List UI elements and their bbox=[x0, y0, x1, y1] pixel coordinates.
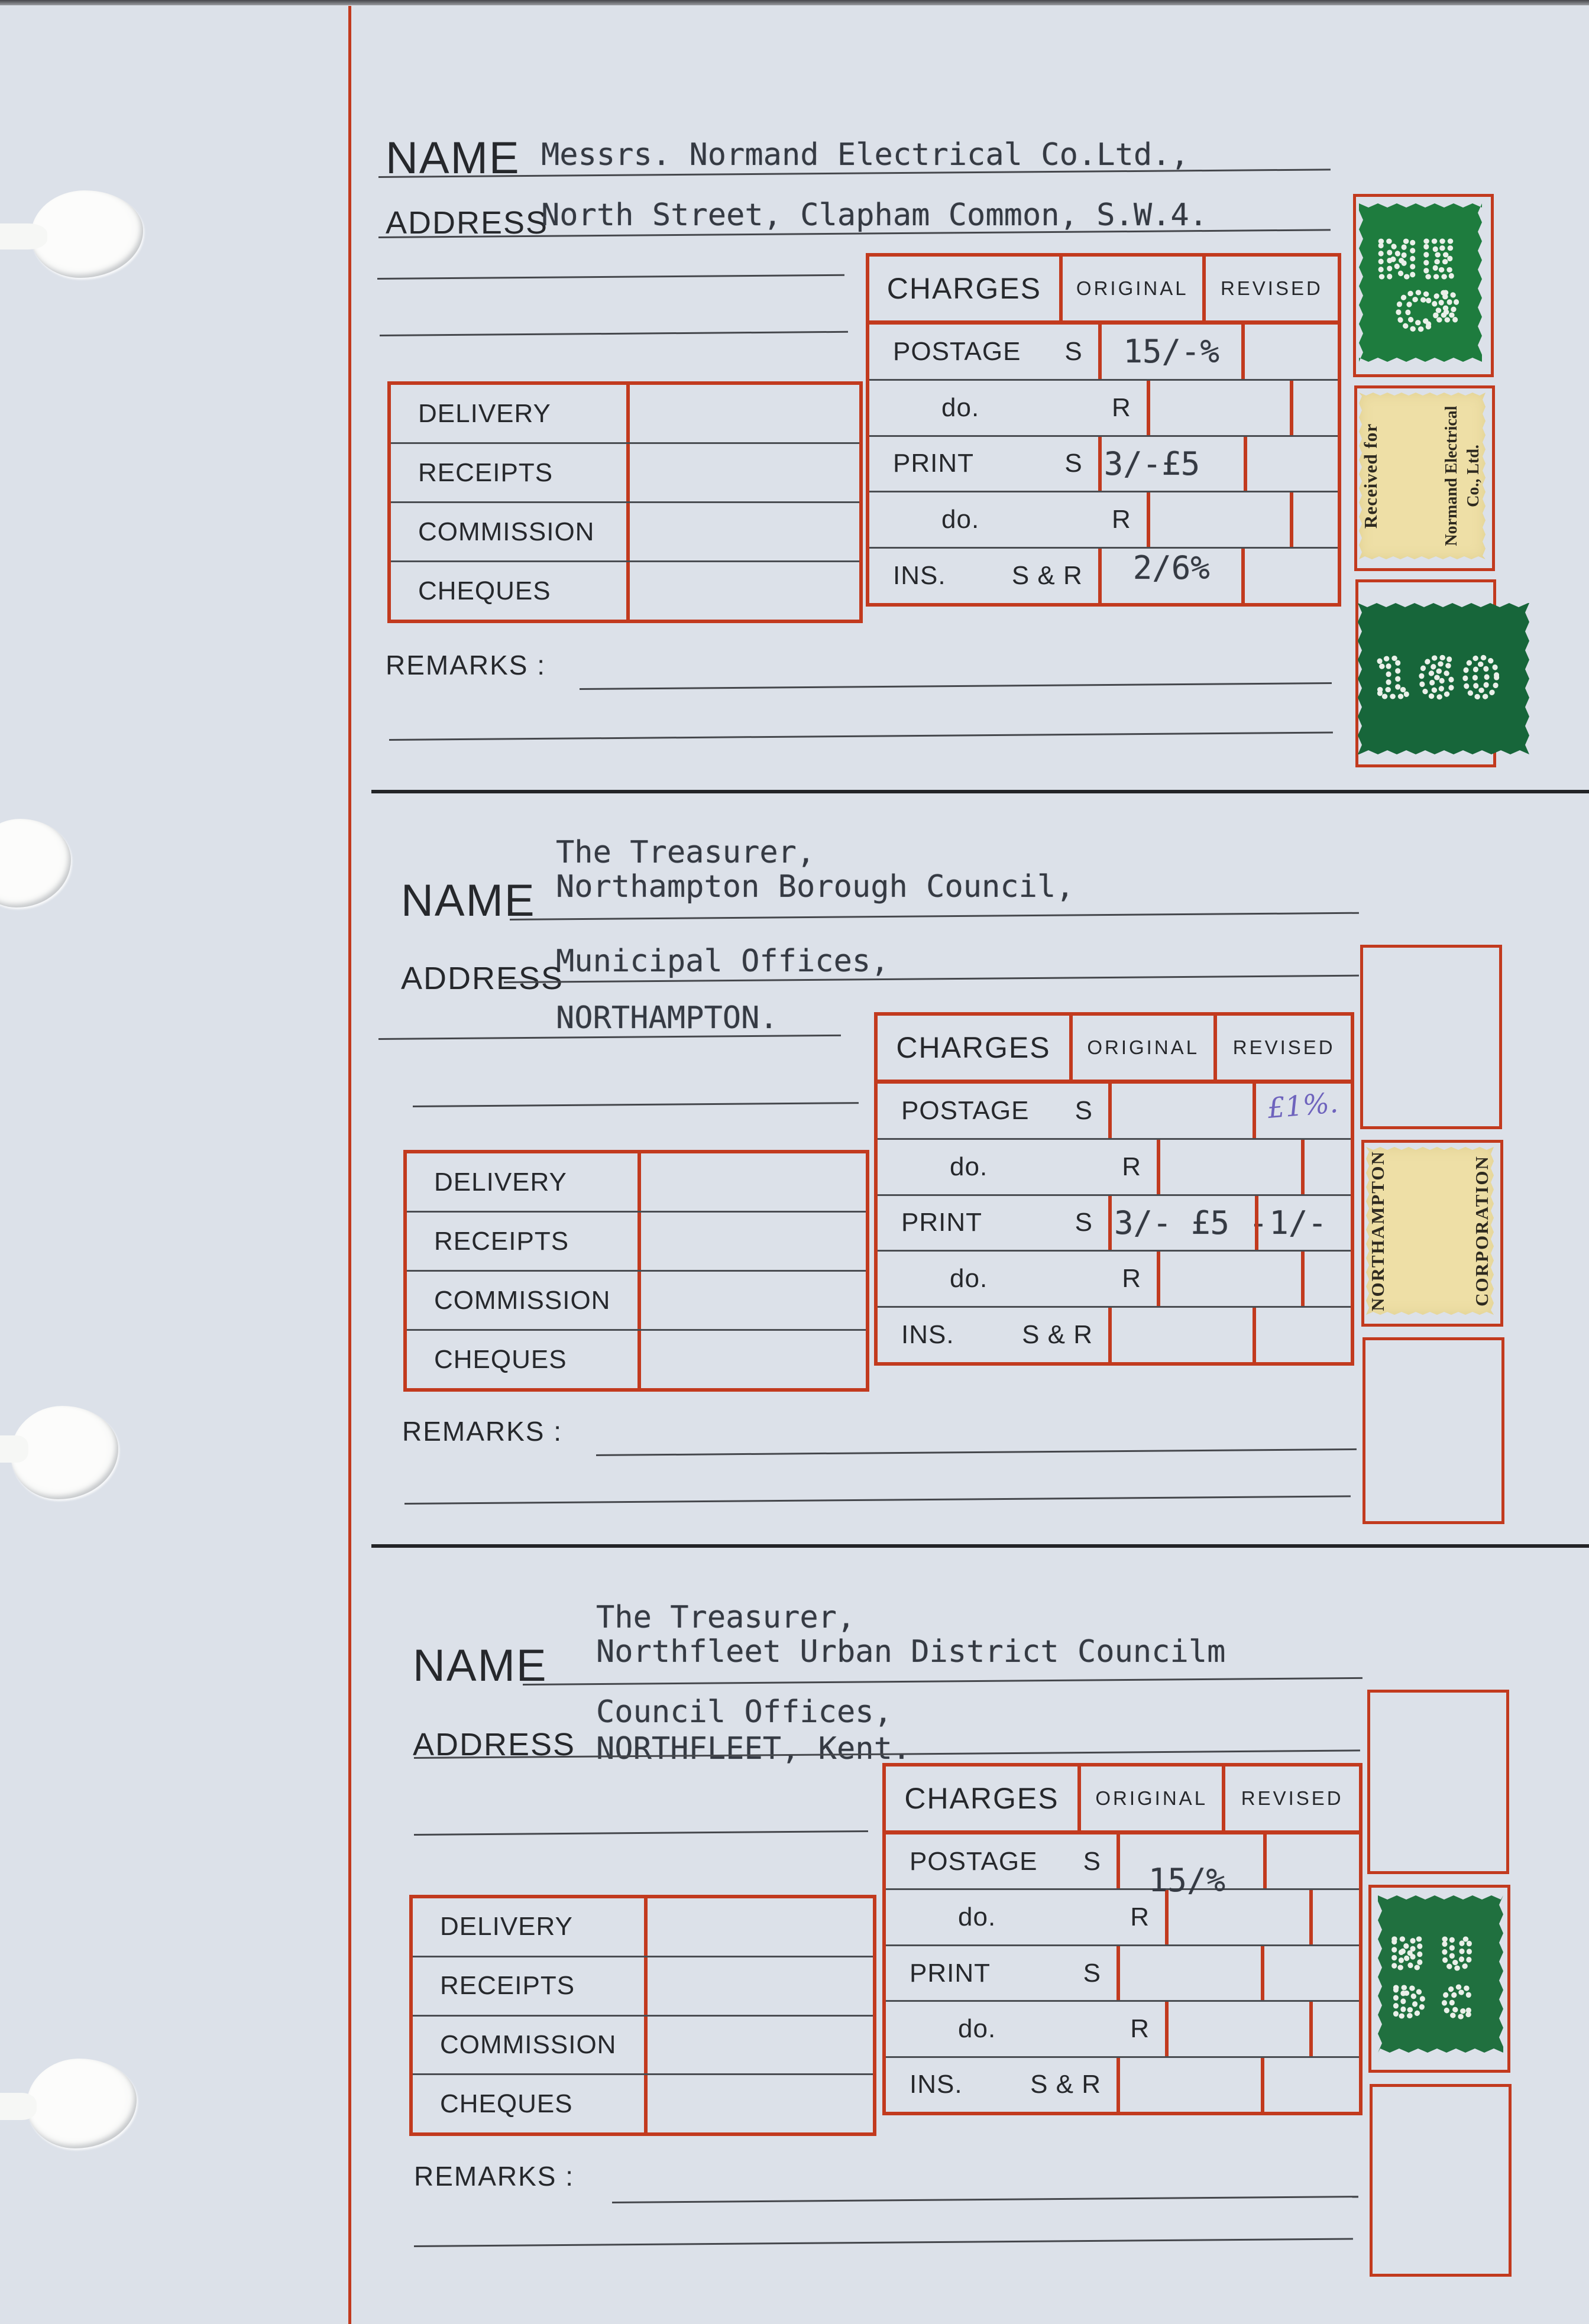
charges-col-original: ORIGINAL bbox=[1059, 257, 1202, 320]
charges-title: CHARGES bbox=[886, 1767, 1077, 1830]
row-label: PRINT bbox=[910, 1959, 991, 1988]
punch-hole-tear bbox=[0, 1435, 28, 1463]
row-suffix: R bbox=[1112, 505, 1131, 534]
ledger-value bbox=[641, 1153, 866, 1211]
row-label: INS. bbox=[901, 1320, 954, 1350]
ledger-row-receipts: RECEIPTS bbox=[407, 1211, 866, 1270]
charges-header-row: CHARGES ORIGINAL REVISED bbox=[878, 1016, 1351, 1084]
ledger-value bbox=[630, 444, 859, 501]
ledger-label: RECEIPTS bbox=[434, 1227, 569, 1256]
ledger-table: DELIVERY RECEIPTS COMMISSION CHEQUES bbox=[387, 381, 863, 623]
name-underline bbox=[523, 1677, 1363, 1686]
row-label: do. bbox=[958, 1902, 996, 1932]
red-margin-line bbox=[348, 6, 351, 2324]
ledger-row-commission: COMMISSION bbox=[413, 2015, 873, 2074]
original-value: 3/-£5 bbox=[1104, 445, 1200, 482]
remarks-underline bbox=[596, 1448, 1357, 1456]
ledger-label: RECEIPTS bbox=[418, 458, 553, 488]
perfin-text: 160 bbox=[1374, 648, 1507, 709]
row-suffix: S bbox=[1083, 1847, 1101, 1876]
label-received-for: Received for bbox=[1360, 423, 1381, 529]
northampton-corporation-label: NORTHAMPTON CORPORATION bbox=[1366, 1147, 1494, 1315]
remarks-underline bbox=[612, 2196, 1358, 2203]
blank-ruled-line bbox=[414, 2238, 1353, 2247]
ledger-row-commission: COMMISSION bbox=[407, 1270, 866, 1329]
row-label: PRINT bbox=[893, 449, 974, 478]
ledger-value bbox=[630, 562, 859, 620]
row-suffix: R bbox=[1112, 393, 1131, 423]
ledger-row-delivery: DELIVERY bbox=[413, 1898, 873, 1956]
perfin-text: DC bbox=[1392, 1980, 1488, 2025]
row-label: POSTAGE bbox=[910, 1847, 1037, 1876]
charges-table: CHARGES ORIGINAL REVISED POSTAGES 15/-% … bbox=[866, 253, 1341, 607]
charges-row-postage-r: do.R bbox=[869, 379, 1338, 435]
charges-row-print-s: PRINTS bbox=[886, 1944, 1359, 2000]
charges-row-postage-r: do.R bbox=[878, 1138, 1351, 1194]
address-value: Council Offices, bbox=[596, 1694, 892, 1730]
ledger-label: RECEIPTS bbox=[440, 1971, 575, 2001]
address-value: Municipal Offices, bbox=[556, 944, 889, 979]
original-value: 3/- £5 - bbox=[1114, 1204, 1268, 1242]
stamp-nudc: NU DC bbox=[1378, 1895, 1503, 2053]
charges-row-postage-s: POSTAGES 15/-% bbox=[869, 325, 1338, 379]
charges-row-ins: INS.S & R 2/6% bbox=[869, 547, 1338, 603]
charges-col-revised: REVISED bbox=[1202, 257, 1338, 320]
address-label: ADDRESS bbox=[401, 960, 564, 997]
ledger-label: CHEQUES bbox=[418, 576, 551, 606]
address-value: North Street, Clapham Common, S.W.4. bbox=[541, 197, 1208, 233]
row-label: POSTAGE bbox=[901, 1096, 1029, 1126]
row-label: do. bbox=[950, 1152, 988, 1182]
charges-col-original: ORIGINAL bbox=[1077, 1767, 1222, 1830]
blank-ruled-line bbox=[389, 731, 1333, 741]
revised-value: 1/- bbox=[1261, 1204, 1327, 1242]
revised-value-handwritten: £1%. bbox=[1267, 1087, 1340, 1125]
remarks-label: REMARKS : bbox=[402, 1415, 562, 1447]
blank-ruled-line bbox=[414, 1830, 868, 1836]
charges-row-print-r: do.R bbox=[869, 491, 1338, 547]
blank-ruled-line bbox=[413, 1102, 859, 1107]
original-value: 2/6% bbox=[1133, 549, 1210, 586]
stamp-box-empty bbox=[1363, 1337, 1504, 1524]
scan-edge bbox=[0, 0, 1589, 5]
charges-row-postage-s: POSTAGES £1%. bbox=[878, 1084, 1351, 1138]
remarks-underline bbox=[580, 682, 1332, 690]
ledger-label: COMMISSION bbox=[440, 2030, 616, 2060]
stamp-160: 160 bbox=[1358, 603, 1529, 754]
label-corporation: CORPORATION bbox=[1471, 1155, 1493, 1307]
row-suffix: S bbox=[1075, 1208, 1093, 1237]
row-label: INS. bbox=[910, 2070, 963, 2099]
charges-row-ins: INS.S & R bbox=[886, 2056, 1359, 2112]
ledger-label: CHEQUES bbox=[434, 1345, 567, 1375]
blank-ruled-line bbox=[380, 331, 848, 336]
perfin-text: NU bbox=[1391, 1931, 1491, 1977]
row-suffix: S bbox=[1083, 1959, 1101, 1988]
address-value: NORTHAMPTON. bbox=[556, 1000, 778, 1036]
name-underline bbox=[510, 912, 1359, 920]
ledger-row-commission: COMMISSION bbox=[391, 501, 859, 560]
ledger-value bbox=[630, 385, 859, 442]
row-label: do. bbox=[958, 2014, 996, 2044]
address-value: NORTHFLEET, Kent. bbox=[596, 1731, 911, 1767]
ledger-value bbox=[648, 2017, 873, 2074]
charges-row-print-r: do.R bbox=[878, 1250, 1351, 1306]
received-for-label: Received for Normand ElectricalCo., Ltd. bbox=[1359, 393, 1486, 559]
name-value: The Treasurer, bbox=[596, 1600, 855, 1635]
punch-hole bbox=[31, 190, 143, 278]
charges-header-row: CHARGES ORIGINAL REVISED bbox=[869, 257, 1338, 325]
remarks-label: REMARKS : bbox=[386, 649, 546, 681]
punch-hole-tear bbox=[0, 223, 47, 249]
punch-hole-tear bbox=[0, 2093, 37, 2120]
name-value: Northfleet Urban District Councilm bbox=[596, 1634, 1225, 1670]
ledger-row-delivery: DELIVERY bbox=[407, 1153, 866, 1211]
blank-ruled-line bbox=[377, 274, 844, 280]
row-label: do. bbox=[941, 505, 979, 534]
charges-col-revised: REVISED bbox=[1213, 1016, 1351, 1080]
ledger-table: DELIVERY RECEIPTS COMMISSION CHEQUES bbox=[403, 1150, 869, 1392]
ledger-value bbox=[648, 2075, 873, 2132]
ledger-label: DELIVERY bbox=[418, 399, 551, 429]
label-company-line1: Normand Electrical bbox=[1442, 406, 1461, 546]
charges-row-postage-s: POSTAGES 15/% bbox=[886, 1834, 1359, 1888]
row-suffix: R bbox=[1122, 1264, 1141, 1294]
ledger-value bbox=[648, 1898, 873, 1956]
row-suffix: S bbox=[1064, 337, 1082, 367]
ledger-label: COMMISSION bbox=[434, 1286, 610, 1315]
row-label: INS. bbox=[893, 561, 946, 591]
section-separator bbox=[371, 1544, 1589, 1548]
charges-row-print-r: do.R bbox=[886, 2000, 1359, 2056]
name-value: Messrs. Normand Electrical Co.Ltd., bbox=[541, 137, 1189, 173]
charges-table: CHARGES ORIGINAL REVISED POSTAGES 15/% d… bbox=[882, 1763, 1363, 2115]
stamp-box-empty bbox=[1370, 2084, 1512, 2277]
ledger-value bbox=[648, 1957, 873, 2015]
remarks-label: REMARKS : bbox=[414, 2160, 574, 2192]
charges-row-ins: INS.S & R bbox=[878, 1306, 1351, 1362]
ledger-value bbox=[630, 503, 859, 560]
row-label: PRINT bbox=[901, 1208, 982, 1237]
perfin-text: NE bbox=[1377, 232, 1460, 289]
ledger-page: NAME Messrs. Normand Electrical Co.Ltd.,… bbox=[0, 0, 1589, 2324]
ledger-label: DELIVERY bbox=[440, 1912, 573, 1941]
ledger-label: DELIVERY bbox=[434, 1168, 567, 1197]
charges-title: CHARGES bbox=[878, 1016, 1069, 1080]
row-label: POSTAGE bbox=[893, 337, 1021, 367]
ledger-row-delivery: DELIVERY bbox=[391, 385, 859, 442]
name-value: The Treasurer, bbox=[556, 835, 815, 870]
row-suffix: R bbox=[1122, 1152, 1141, 1182]
ledger-value bbox=[641, 1272, 866, 1329]
punch-hole bbox=[0, 819, 71, 907]
charges-table: CHARGES ORIGINAL REVISED POSTAGES £1%. d… bbox=[874, 1012, 1354, 1366]
row-suffix: S & R bbox=[1012, 561, 1083, 591]
ledger-row-cheques: CHEQUES bbox=[391, 560, 859, 620]
blank-ruled-line bbox=[404, 1495, 1351, 1505]
row-suffix: R bbox=[1130, 2014, 1150, 2044]
ledger-label: CHEQUES bbox=[440, 2089, 573, 2119]
stamp-ne-co: NE Cº bbox=[1359, 203, 1482, 362]
name-value: Northampton Borough Council, bbox=[556, 869, 1075, 905]
ledger-value bbox=[641, 1213, 866, 1270]
original-value: 15/-% bbox=[1123, 333, 1219, 370]
charges-title: CHARGES bbox=[869, 257, 1059, 320]
charges-row-print-s: PRINTS 3/- £5 - 1/- bbox=[878, 1194, 1351, 1250]
charges-header-row: CHARGES ORIGINAL REVISED bbox=[886, 1767, 1359, 1834]
ledger-table: DELIVERY RECEIPTS COMMISSION CHEQUES bbox=[409, 1895, 876, 2136]
ledger-row-cheques: CHEQUES bbox=[407, 1329, 866, 1388]
label-company-line2: Co., Ltd. bbox=[1464, 445, 1483, 507]
perfin-text: Cº bbox=[1396, 284, 1459, 341]
label-northampton: NORTHAMPTON bbox=[1367, 1150, 1389, 1311]
ledger-value bbox=[641, 1331, 866, 1388]
punch-hole bbox=[27, 2059, 137, 2148]
ledger-row-cheques: CHEQUES bbox=[413, 2073, 873, 2132]
row-suffix: S & R bbox=[1030, 2070, 1101, 2099]
ledger-label: COMMISSION bbox=[418, 517, 594, 547]
stamp-box-empty bbox=[1360, 945, 1502, 1129]
charges-col-revised: REVISED bbox=[1222, 1767, 1359, 1830]
row-suffix: S bbox=[1075, 1096, 1093, 1126]
stamp-box-empty bbox=[1367, 1690, 1509, 1874]
ledger-row-receipts: RECEIPTS bbox=[413, 1956, 873, 2015]
original-value: 15/% bbox=[1122, 1862, 1225, 1899]
row-label: do. bbox=[941, 393, 979, 423]
row-suffix: S bbox=[1064, 449, 1082, 478]
row-label: do. bbox=[950, 1264, 988, 1294]
row-suffix: R bbox=[1130, 1902, 1150, 1932]
row-suffix: S & R bbox=[1022, 1320, 1093, 1350]
section-separator bbox=[371, 790, 1589, 793]
ledger-row-receipts: RECEIPTS bbox=[391, 442, 859, 501]
charges-col-original: ORIGINAL bbox=[1069, 1016, 1213, 1080]
charges-row-print-s: PRINTS 3/-£5 bbox=[869, 435, 1338, 491]
